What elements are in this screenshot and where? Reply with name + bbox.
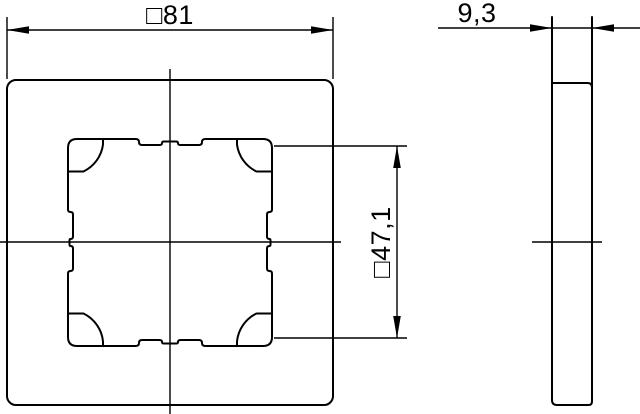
side-view-profile [552,17,592,405]
cover-frame-dimension-drawing: □81 □47,1 9,3 [0,0,640,414]
side-view-top-edge [552,83,592,88]
dimension-thickness: 9,3 [438,0,640,32]
dimension-label-inner-opening: □47,1 [366,206,396,277]
dimension-label-outer-width: □81 [146,0,194,30]
arrowhead-top [393,146,401,168]
front-view [0,69,341,414]
technical-drawing-canvas: □81 □47,1 9,3 [0,0,640,414]
corner-relief-bottom-right [237,314,272,347]
arrowhead-bottom [393,316,401,338]
corner-relief-top-left [68,139,103,172]
arrowhead-right [311,26,333,34]
dimension-label-thickness: 9,3 [457,0,496,28]
corner-relief-top-right [237,139,272,172]
corner-relief-bottom-left [68,314,103,347]
side-view [532,17,602,405]
arrowhead-left [7,26,29,34]
arrowhead-left [530,24,552,32]
arrowhead-right [592,24,614,32]
dimension-outer-width: □81 [7,0,333,79]
